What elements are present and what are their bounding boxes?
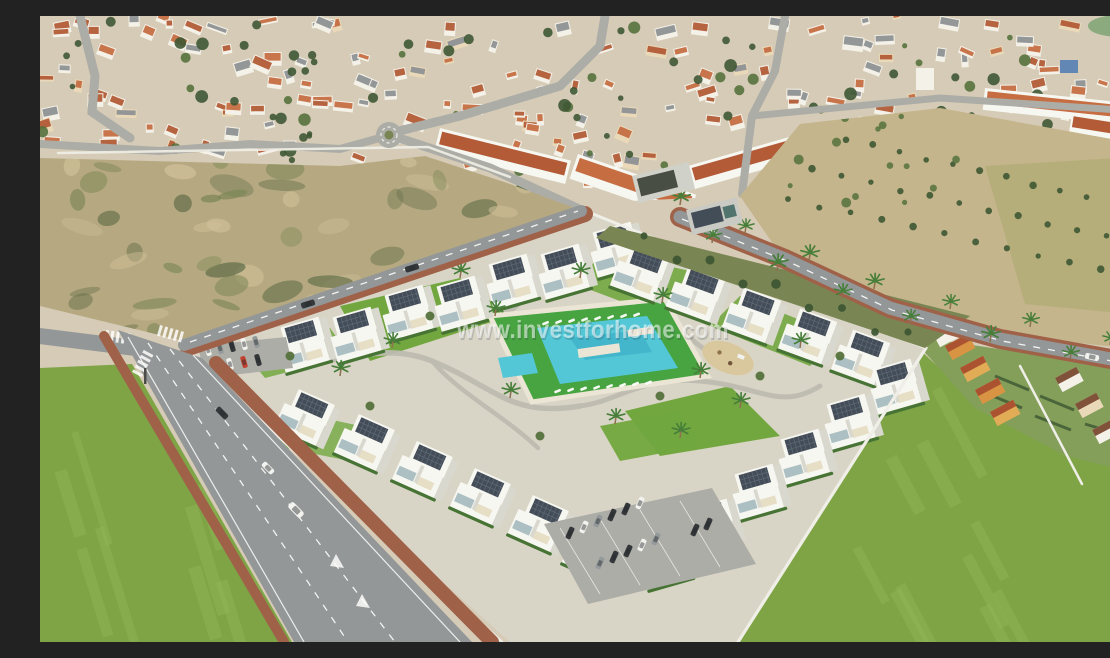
watermark: www.investforhome.com www.investforhome.… xyxy=(456,316,730,346)
aerial-photo-canvas: www.investforhome.com www.investforhome.… xyxy=(40,16,1110,642)
watermark-text: www.investforhome.com xyxy=(456,316,729,344)
aerial-development-photo: www.investforhome.com www.investforhome.… xyxy=(40,16,1110,642)
